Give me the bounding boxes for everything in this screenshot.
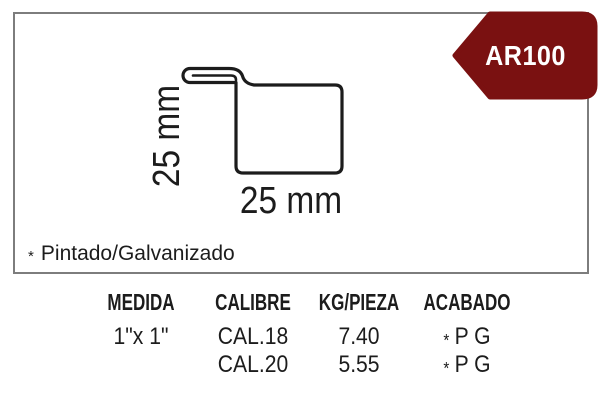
asterisk-marker: * bbox=[28, 248, 34, 265]
acabado-value: P G bbox=[455, 351, 491, 378]
cell-acabado-row2: *P G bbox=[392, 351, 542, 379]
height-dimension-label: 25 mm bbox=[148, 85, 186, 187]
asterisk-marker: * bbox=[443, 358, 449, 378]
product-spec-card: 25 mm 25 mm *Pintado/Galvanizado AR100 M… bbox=[0, 0, 601, 400]
table-column-acabado: ACABADO *P G *P G bbox=[382, 289, 552, 379]
column-header-acabado: ACABADO bbox=[404, 289, 530, 315]
acabado-value: P G bbox=[455, 323, 491, 350]
finish-footnote: *Pintado/Galvanizado bbox=[28, 242, 235, 266]
cell-acabado-row1: *P G bbox=[392, 323, 542, 351]
width-dimension-label: 25 mm bbox=[240, 182, 342, 220]
footnote-text: Pintado/Galvanizado bbox=[41, 242, 235, 265]
product-code-label: AR100 bbox=[459, 11, 591, 100]
product-code-badge: AR100 bbox=[452, 11, 599, 100]
asterisk-marker: * bbox=[443, 330, 449, 350]
